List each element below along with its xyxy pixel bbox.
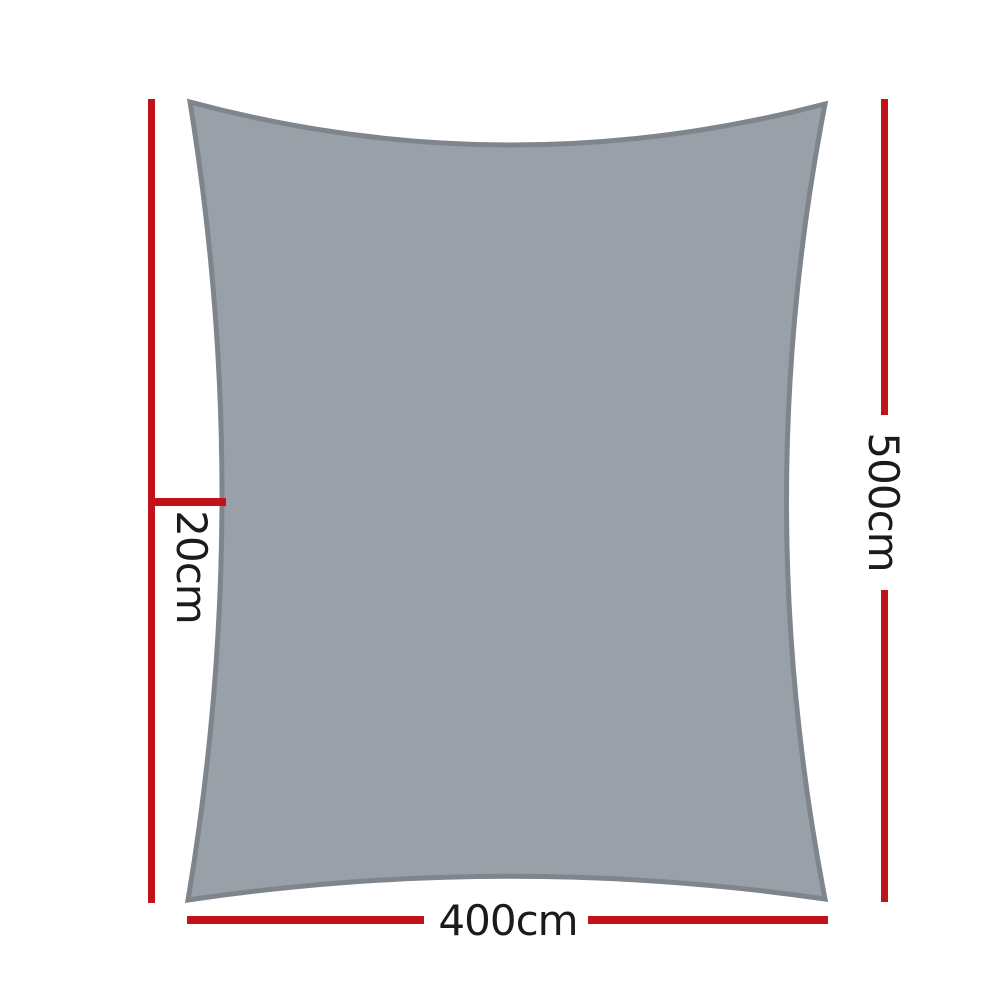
offset-dimension-label: 20cm <box>170 510 212 623</box>
offset-tick-line <box>148 498 226 506</box>
height-dimension-line-top <box>881 99 888 415</box>
width-dimension-line-left <box>187 916 424 924</box>
height-dimension-line-bottom <box>881 590 888 902</box>
width-dimension-line-right <box>588 916 828 924</box>
width-dimension-label: 400cm <box>438 900 577 942</box>
dimension-diagram: 20cm 500cm 400cm <box>0 0 1000 1000</box>
shade-sail-shape <box>188 102 825 900</box>
height-dimension-label: 500cm <box>862 432 904 571</box>
